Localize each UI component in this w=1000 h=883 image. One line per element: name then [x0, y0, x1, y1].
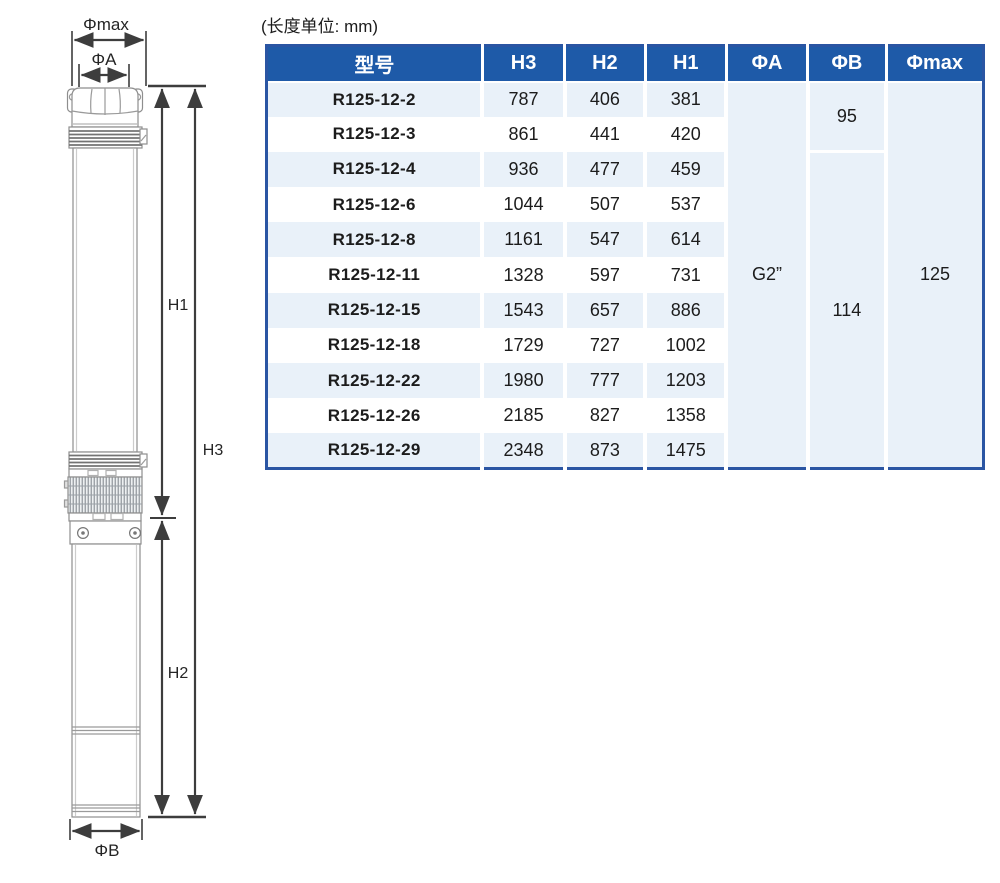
model-cell: R125-12-3	[267, 117, 483, 152]
h3-cell: 1161	[482, 222, 564, 257]
h3-cell: 1543	[482, 293, 564, 328]
h2-label: H2	[168, 665, 189, 682]
h1-cell: 381	[645, 82, 726, 117]
h1-cell: 1358	[645, 398, 726, 433]
h1-cell: 1002	[645, 328, 726, 363]
pump-ribbed-collar-top	[69, 127, 147, 148]
pump-bolt-plate	[70, 521, 141, 544]
col-header-h2: H2	[565, 46, 645, 82]
phi-a-label: ΦA	[92, 50, 118, 69]
h1-cell: 1475	[645, 433, 726, 468]
h2-cell: 827	[565, 398, 645, 433]
h1-cell: 731	[645, 257, 726, 292]
col-header-h3: H3	[482, 46, 564, 82]
model-cell: R125-12-2	[267, 82, 483, 117]
model-cell: R125-12-4	[267, 152, 483, 187]
model-cell: R125-12-22	[267, 363, 483, 398]
h2-cell: 441	[565, 117, 645, 152]
h2-cell: 873	[565, 433, 645, 468]
unit-note: (长度单位: mm)	[261, 12, 378, 37]
h3-cell: 2348	[482, 433, 564, 468]
h2-cell: 477	[565, 152, 645, 187]
h2-cell: 406	[565, 82, 645, 117]
h3-cell: 2185	[482, 398, 564, 433]
h3-cell: 1729	[482, 328, 564, 363]
phi-b-merged-cell-top: 95	[808, 82, 886, 152]
model-cell: R125-12-6	[267, 187, 483, 222]
h2-cell: 657	[565, 293, 645, 328]
h1-cell: 537	[645, 187, 726, 222]
col-header-h1: H1	[645, 46, 726, 82]
model-cell: R125-12-26	[267, 398, 483, 433]
h1-cell: 1203	[645, 363, 726, 398]
h2-cell: 777	[565, 363, 645, 398]
col-header-phi-b: ΦB	[808, 46, 886, 82]
model-cell: R125-12-11	[267, 257, 483, 292]
h3-cell: 787	[482, 82, 564, 117]
h3-cell: 861	[482, 117, 564, 152]
model-cell: R125-12-8	[267, 222, 483, 257]
h2-cell: 547	[565, 222, 645, 257]
h3-cell: 1044	[482, 187, 564, 222]
h1-label: H1	[168, 297, 189, 314]
h2-cell: 507	[565, 187, 645, 222]
pump-body	[73, 148, 137, 452]
table-row: R125-12-2 787 406 381 G2” 95 125	[267, 82, 984, 117]
model-cell: R125-12-15	[267, 293, 483, 328]
h3-cell: 1980	[482, 363, 564, 398]
pump-motor-body	[72, 544, 140, 817]
pump-dimension-diagram: Φmax ΦA H1 H3 H2 ΦB	[0, 0, 260, 883]
phi-max-merged-cell: 125	[886, 82, 983, 469]
table-row: R125-12-4 936 477 459 114	[267, 152, 984, 187]
h1-cell: 420	[645, 117, 726, 152]
pump-intake-screen	[65, 477, 143, 513]
pump-ribbed-collar-bottom	[69, 452, 147, 469]
pump-band-lower	[69, 513, 141, 521]
h3-label: H3	[203, 442, 224, 459]
spec-table: 型号 H3 H2 H1 ΦA ΦB Φmax R125-12-2 787 406…	[265, 44, 985, 470]
phi-max-label: Φmax	[83, 15, 129, 34]
col-header-phi-a: ΦA	[726, 46, 807, 82]
h3-cell: 936	[482, 152, 564, 187]
pump-band-upper	[69, 469, 142, 477]
model-cell: R125-12-18	[267, 328, 483, 363]
h1-cell: 614	[645, 222, 726, 257]
phi-b-merged-cell-bottom: 114	[808, 152, 886, 469]
h1-cell: 886	[645, 293, 726, 328]
header-row: 型号 H3 H2 H1 ΦA ΦB Φmax	[267, 46, 984, 82]
model-cell: R125-12-29	[267, 433, 483, 468]
phi-a-merged-cell: G2”	[726, 82, 807, 469]
spec-table-container: 型号 H3 H2 H1 ΦA ΦB Φmax R125-12-2 787 406…	[265, 44, 985, 470]
pump-drawing	[65, 88, 148, 817]
h2-cell: 727	[565, 328, 645, 363]
col-header-phi-max: Φmax	[886, 46, 983, 82]
col-header-model: 型号	[267, 46, 483, 82]
h3-cell: 1328	[482, 257, 564, 292]
h1-cell: 459	[645, 152, 726, 187]
phi-b-label: ΦB	[95, 841, 120, 860]
pump-top-cap	[72, 88, 138, 127]
h2-cell: 597	[565, 257, 645, 292]
